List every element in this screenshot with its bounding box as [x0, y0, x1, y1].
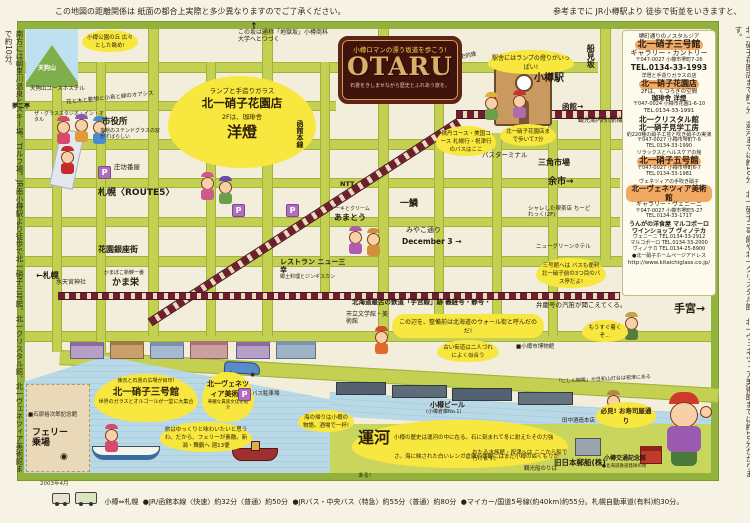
shop-tel: TEL.0134-33-1990 [626, 144, 712, 150]
label-new-sanko: レストラン ニュー三幸 [280, 258, 352, 274]
label-nyk-building: 旧日本郵船(株) [554, 459, 606, 468]
shop-tel: TEL.0134-33-1993 [626, 64, 712, 72]
bubble-park: 小樽公園の丘 広々とした眺め! [82, 30, 138, 52]
otaru-illustrated-map: この地図の距離関係は 紙面の都合上実際と多少異なりますのでご了承ください。 参考… [0, 0, 750, 523]
label-literature-museum: 市立文学館・美術館 [346, 312, 392, 326]
label-temiya-line-history2: 弁慶号の汽笛が聞こえてくる。 [536, 302, 666, 309]
railway-temiya-line [58, 292, 620, 300]
cartoon-character [200, 172, 214, 200]
shop-name-text: 北一ヴェネツィア美術館 [626, 185, 712, 202]
character-body [61, 163, 74, 174]
legend-car: ●マイカー/国道5号線(約40km)約55分。札幌自動車道(有料)約30分。 [461, 498, 683, 506]
bus-wheel [89, 502, 93, 506]
label-new-sanko-note: 郷土料理とジンギスカン [280, 275, 350, 281]
character-body [513, 107, 526, 118]
canal-warehouse [392, 385, 447, 398]
label-cafe-chidoreku: シャレした喫茶店 ちーどれっく(2F) [528, 206, 592, 219]
travel-time-legend: 小樽⇔札幌 ●JR/函館本線〈快速〉約32分〈普通〉約50分 ●JRバス・中央バ… [52, 492, 742, 507]
road-segment [148, 29, 159, 336]
big-kid-legs [671, 452, 697, 466]
car-wheel [63, 502, 67, 506]
label-hakodate-arrow: 函館→ [562, 103, 583, 112]
label-otaru-beer: 小樽ビール [430, 401, 465, 409]
label-transport-museum-note: ●北海道鉄道発祥の地 [602, 464, 646, 469]
cartoon-character-station-girl [512, 90, 526, 118]
character-body [219, 193, 232, 204]
character-body [367, 245, 380, 256]
margin-note-right: 北一硝子花園店まで約7分。運河までは約10分。北一硝子三号館や北一クリスタル館、… [733, 26, 750, 481]
bubble-mustsee-sushi: 必見! お寿司屋通り [596, 402, 656, 428]
big-kid-peace-hand [700, 406, 712, 418]
big-kid-head [670, 402, 698, 428]
label-ichirin: 一鱗 [400, 199, 418, 209]
shop-addr: 〒047-0024 小樽市花園1-6-10 [626, 102, 712, 108]
label-miyako-street: みやこ通り [406, 226, 441, 234]
canal-warehouse [336, 382, 386, 395]
bubble-soon: もうすぐ着くぞ… [582, 320, 628, 342]
canal-warehouse [452, 388, 512, 401]
shop-building [110, 341, 144, 359]
character-body [349, 243, 362, 254]
homepage-url: http://www.kitaichiglass.co.jp/ [626, 260, 712, 266]
ferry-boat [92, 446, 160, 460]
bubble-cap: 煉瓦と石畳の広場が目印! [98, 377, 194, 384]
shop-directory-panel: 堺町通りのノスタルジア 北一硝子三号館 ギャラリー・カントリー 〒047-002… [622, 30, 716, 296]
bubble-walk-7min: 北一硝子花園店まで歩いて7分 [500, 124, 556, 146]
cartoon-character-dancer [374, 326, 388, 354]
bubble-name: 北一硝子花園店 [172, 95, 312, 111]
map-date-stamp: 2003年4月 [40, 481, 69, 487]
label-temiya-line-history1: 北海道最古の鉄道「手宮線」跡 義経号・静号・ [352, 299, 532, 306]
label-amato-note: ケーキとクリーム [330, 207, 370, 213]
label-ntt: NTT [340, 181, 354, 188]
shop-tel: TEL.0134-33-1717 [626, 214, 712, 220]
bubble-canal-title: 運河 [358, 424, 390, 448]
bubble-old-road: 古い街道は二人づれによく似合う [437, 340, 499, 362]
bubble-station-lamp: 駅舎にはランプの燈りがいっぱい! [488, 50, 574, 74]
station-name: 小樽駅 [534, 73, 564, 85]
label-yoichi-arrow: 余市→ [548, 177, 574, 187]
nyk-building [575, 438, 601, 456]
cartoon-character [366, 228, 380, 256]
parking-icon: P [232, 204, 245, 217]
bubble-hanazono-shop: ランプと手造りガラス 北一硝子花園店 2Fは、珈琲舎 洋燈 [168, 76, 316, 168]
label-kamaei: かま栄 [112, 278, 139, 288]
bubble-big: 洋燈 [172, 121, 312, 142]
shop-name-text: 北一硝子花園店 [639, 80, 699, 89]
car-wheel [55, 502, 59, 506]
label-december3: December 3 → [402, 238, 462, 247]
shop-tel: ヴィノテカ TEL.0134-25-8900 [626, 247, 712, 253]
homepage-label: ●北一硝子ホームページアドレス [626, 254, 712, 260]
canal-warehouse [518, 392, 573, 405]
label-shobo: 庄坊番屋 [114, 164, 140, 171]
label-sightseeing-boat: 観光船のりば [524, 466, 557, 472]
shop-tel: TEL.0134-33-1991 [626, 108, 712, 114]
otaru-sign: 小樽ロマンの漂う坂道を歩こう! OTARU 石畳をきしませながら歴史とふれあう旅… [338, 36, 462, 104]
character-body [57, 133, 70, 144]
shop-tel: TEL.0134-33-1981 [626, 172, 712, 178]
label-transport-museum: 小樽交通記念館 [604, 456, 646, 463]
tenguyama-mountain: 天狗山 [26, 29, 78, 87]
label-sankaku-market: 三角市場 [538, 158, 570, 167]
legend-jr: ●JR/函館本線〈快速〉約32分〈普通〉約50分 [143, 498, 288, 506]
label-tengu-hostel: 天狗山ユースホステル [30, 86, 88, 92]
label-otaru-beer-note: (小樽倉庫No.1) [426, 410, 461, 416]
label-funamizaka: 船見坂 [586, 44, 595, 68]
bubble-cap: ランプと手造りガラス [172, 85, 312, 95]
label-city-museum: ■小樽市博物館 [516, 344, 554, 350]
character-body [75, 131, 88, 142]
label-bus-terminal: バスターミナル [482, 152, 540, 159]
big-kid-body [667, 426, 701, 452]
car-icon [52, 493, 70, 504]
bubble-sangokan: 煉瓦と石畳の広場が目印! 北一硝子三号館 世界のガラスとオルゴールが一堂に大集合 [94, 374, 198, 422]
label-hakodate-line: 函館本線 [296, 120, 304, 148]
label-green-hotel: ニューグリーンホテル [536, 244, 598, 250]
bubble-line: 2Fは、珈琲舎 [172, 111, 312, 121]
label-route5: 札幌〈ROUTE5〉 [98, 188, 174, 198]
shop-building [150, 342, 184, 359]
ship-funnel [251, 441, 260, 451]
sign-title: OTARU [342, 54, 458, 79]
label-kamaei-note: かまぼこ新鮮一番 [104, 271, 144, 277]
cartoon-character-station-boy [484, 92, 498, 120]
character-body [201, 189, 214, 200]
bubble-sea-return: 海の帰りは小樽の物語。酒場で一杯! [298, 410, 354, 432]
shop-building [236, 342, 270, 359]
road-segment [96, 62, 106, 352]
character-body [485, 109, 498, 120]
legend-bus: ●JRバス・中央バス〈特急〉約55分〈普通〉約80分 [292, 498, 456, 506]
margin-note-left: 南方には朝里川温泉とスキー場、ゴルフ場。JR南小樽駅より徒歩で北一硝子三号館、北… [3, 30, 25, 475]
label-cityhall: 市役所 [102, 118, 128, 128]
shop-building [190, 341, 228, 359]
bubble-bus-to-sangokan: 三号館へは バスも便利 北一硝子前の3つ目のバス停だよ! [536, 258, 606, 288]
shop-name: 北一ヴェネツィア美術館 [626, 185, 712, 202]
shop-building [70, 342, 104, 359]
arrow-up-icon: ↑ [250, 22, 258, 32]
label-suitengu: 水天宮神社 [56, 280, 86, 287]
margin-note-top-left: この地図の距離関係は 紙面の都合上実際と多少異なりますのでご了承ください。 [55, 6, 346, 17]
label-temiya-arrow: 手宮→ [674, 303, 705, 316]
parking-icon: P [98, 166, 111, 179]
label-hanazono-ginza: 花園銀座街 [98, 245, 138, 254]
character-body [105, 441, 118, 452]
bus-icon [75, 492, 97, 504]
road-segment [262, 29, 273, 336]
margin-note-top-right: 参考までに JR小樽駅より 徒歩で街並をいきますと、 [553, 6, 742, 17]
cartoon-character-big-kid [656, 392, 712, 472]
shop-building [276, 341, 316, 359]
label-tanaka-sake: 田中酒造本店 [562, 418, 595, 424]
cartoon-character-boat-woman [104, 424, 118, 452]
bubble-ferry: 旅はゆっくりと味わいたいと思うわ。だから、フェリーが素敵。新潟・舞鶴へ 週13便 [160, 422, 252, 452]
character-body [375, 343, 388, 354]
cartoon-character [348, 226, 362, 254]
bubble-name: 北一硝子三号館 [98, 384, 194, 398]
parking-icon: P [286, 204, 299, 217]
legend-route: 小樽⇔札幌 [104, 498, 138, 506]
label-amato: あまとう [334, 213, 366, 222]
label-ishihara-museum: ■石原裕次郎記念館 [28, 412, 88, 418]
label-ferry-terminal: フェリー乗場 [32, 428, 76, 449]
cartoon-character-skier [60, 146, 74, 174]
bubble-sub: 世界のガラスとオルゴールが一堂に大集合 [98, 398, 194, 405]
bubble-wall-street: この辺を、整備前は北海道のウォール街と呼んだのだ! [392, 314, 544, 338]
sign-subtitle: 石畳をきしませながら歴史とふれあう旅を。 [342, 82, 458, 89]
label-glass-studio: ザ・グラススタジオ・イン・オタル [34, 112, 104, 124]
ferry-pier-icon: ◉ [60, 452, 68, 462]
label-cityhall-note: 本館のステンドグラスの窓がすばらしい [100, 129, 162, 141]
shop-name: 北一硝子花園店 [626, 80, 712, 89]
cartoon-character [218, 176, 232, 204]
parking-icon-bus: P [238, 388, 251, 401]
bus-wheel [79, 502, 83, 506]
steam-ship [232, 448, 278, 461]
label-bus-parking: バス駐車場 [252, 391, 280, 397]
road-funamizaka [600, 29, 611, 260]
mountain-label: 天狗山 [38, 63, 56, 72]
